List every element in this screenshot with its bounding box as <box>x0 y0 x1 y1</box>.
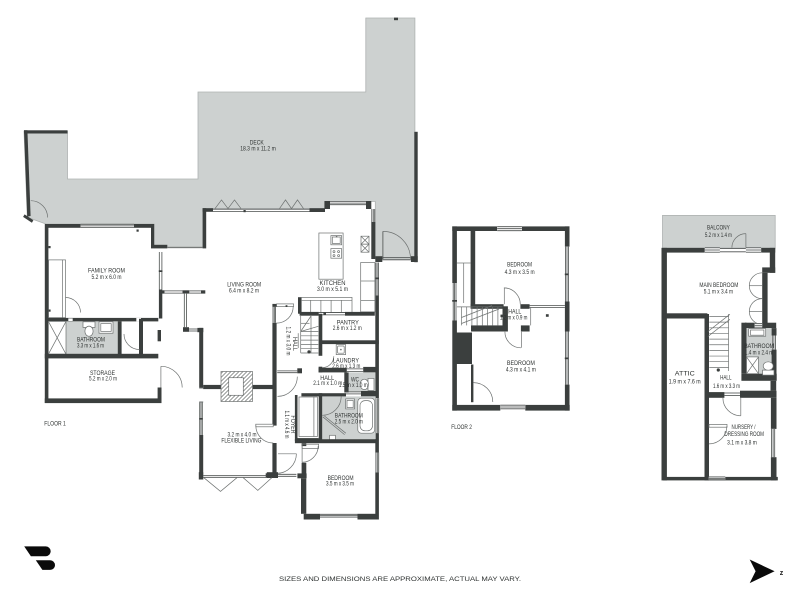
svg-text:1.9 m x 7.6 m: 1.9 m x 7.6 m <box>669 380 701 386</box>
svg-text:FLOOR 1: FLOOR 1 <box>44 420 66 427</box>
svg-text:1.1 m x 4.6 m: 1.1 m x 4.6 m <box>283 411 289 439</box>
svg-text:SIZES AND DIMENSIONS ARE APPRO: SIZES AND DIMENSIONS ARE APPROXIMATE, AC… <box>279 576 521 583</box>
svg-text:ATTIC: ATTIC <box>675 372 696 378</box>
svg-text:HALL: HALL <box>720 376 732 382</box>
svg-text:4.3 m x 4.1 m: 4.3 m x 4.1 m <box>506 367 536 373</box>
svg-text:3.5 m x 3.5 m: 3.5 m x 3.5 m <box>326 482 354 488</box>
svg-text:2.6 m x 1.2 m: 2.6 m x 1.2 m <box>333 326 362 332</box>
svg-text:1.4 m x 2.4 m: 1.4 m x 2.4 m <box>745 351 773 357</box>
svg-text:3.0 m x 5.1 m: 3.0 m x 5.1 m <box>317 287 348 293</box>
svg-text:5.1 m x 3.4 m: 5.1 m x 3.4 m <box>704 289 733 295</box>
svg-text:HALL: HALL <box>291 337 297 352</box>
svg-text:3.1 m x 3.8 m: 3.1 m x 3.8 m <box>727 441 757 447</box>
svg-text:DRESSING ROOM: DRESSING ROOM <box>724 432 764 438</box>
svg-text:4.3 m x 3.5 m: 4.3 m x 3.5 m <box>505 270 535 276</box>
svg-text:1.6 m x 3.3 m: 1.6 m x 3.3 m <box>713 384 740 390</box>
svg-text:FLEXIBLE LIVING: FLEXIBLE LIVING <box>221 439 261 445</box>
svg-text:BEDROOM: BEDROOM <box>507 361 535 367</box>
svg-text:6.4 m x 8.2 m: 6.4 m x 8.2 m <box>229 289 259 295</box>
svg-text:5.2 m x 2.0 m: 5.2 m x 2.0 m <box>89 377 117 383</box>
svg-text:BATHROOM: BATHROOM <box>744 344 774 350</box>
svg-text:HALL: HALL <box>508 309 522 315</box>
svg-text:18.3 m x 11.2 m: 18.3 m x 11.2 m <box>240 146 276 152</box>
svg-text:BALCONY: BALCONY <box>707 225 730 231</box>
svg-text:5.2 m x 6.0 m: 5.2 m x 6.0 m <box>92 275 122 281</box>
svg-text:1.5 m x 1.0 m: 1.5 m x 1.0 m <box>339 383 368 389</box>
svg-text:BATHROOM: BATHROOM <box>335 413 363 419</box>
svg-text:2.1 m x 1.0 m: 2.1 m x 1.0 m <box>313 381 342 387</box>
svg-text:BEDROOM: BEDROOM <box>507 263 532 269</box>
svg-text:1.2 m x 3.0 m: 1.2 m x 3.0 m <box>284 327 290 356</box>
svg-text:2.5 m x 2.0 m: 2.5 m x 2.0 m <box>335 420 363 426</box>
svg-text:FLOOR 2: FLOOR 2 <box>451 424 472 431</box>
svg-text:FAMILY ROOM: FAMILY ROOM <box>88 269 125 275</box>
svg-text:3.3 m x 1.6 m: 3.3 m x 1.6 m <box>77 343 104 349</box>
svg-text:5.2 m x 1.4 m: 5.2 m x 1.4 m <box>705 233 732 239</box>
svg-text:NURSERY /: NURSERY / <box>732 425 756 431</box>
svg-text:z: z <box>780 570 784 577</box>
svg-text:MAIN BEDROOM: MAIN BEDROOM <box>699 283 738 289</box>
svg-text:1.2 m x 0.9 m: 1.2 m x 0.9 m <box>500 316 528 322</box>
